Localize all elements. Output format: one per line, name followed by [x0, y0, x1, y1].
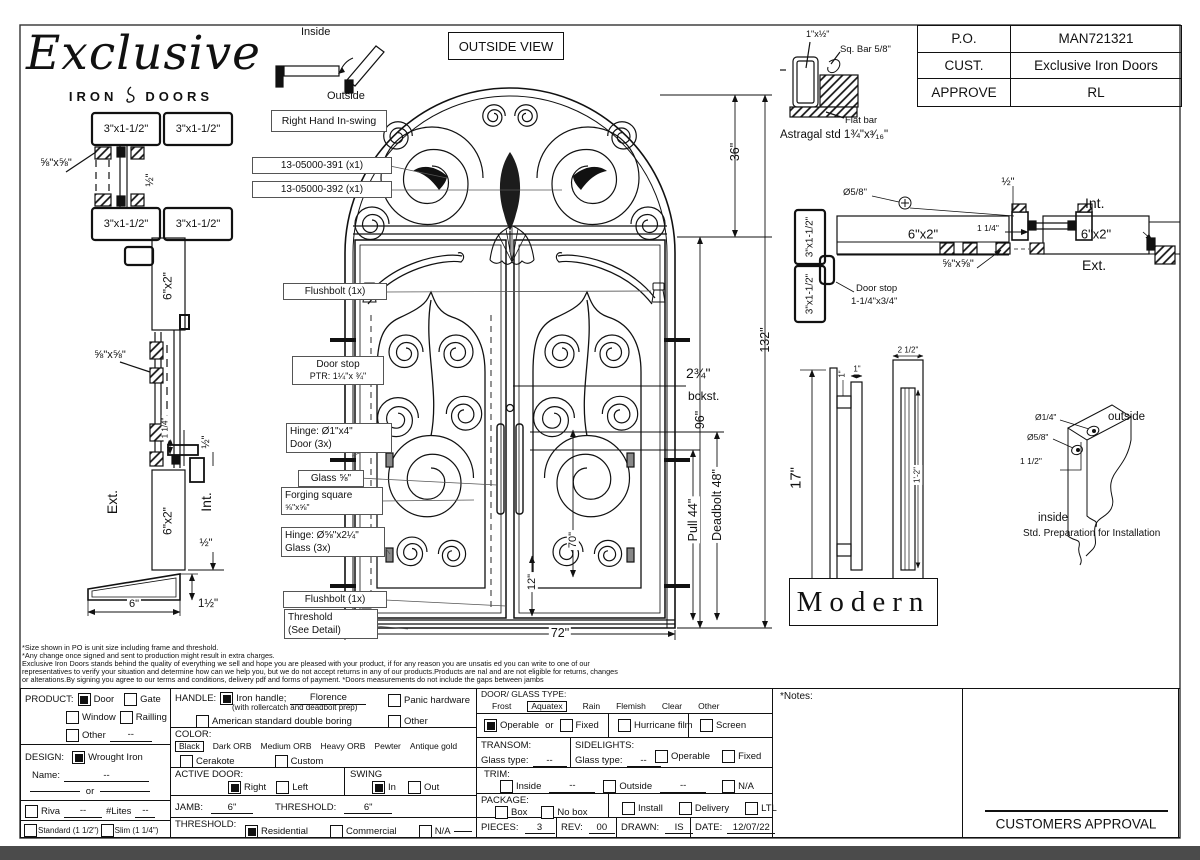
callout-flushbolt-bottom: Flushbolt (1x) — [283, 591, 387, 608]
package-label: PACKAGE: — [481, 796, 529, 806]
form-border — [476, 713, 772, 714]
hurricane-label: Hurricane film — [634, 721, 693, 731]
checkbox-residential[interactable] — [245, 825, 258, 838]
swing-in-label: In — [388, 783, 396, 793]
glass-clear[interactable]: Clear — [662, 702, 682, 711]
handle-panic-row: Panic hardware — [388, 694, 470, 707]
riva-value[interactable]: -- — [64, 805, 102, 817]
notes-label: *Notes: — [780, 691, 813, 702]
handle-inner-dim: 1'-2" — [914, 465, 923, 485]
checkbox-product-gate[interactable] — [124, 693, 137, 706]
checkbox-riva[interactable] — [25, 805, 38, 818]
checkbox-slim[interactable] — [101, 824, 114, 837]
prep-caption: Std. Preparation for Installation — [1023, 528, 1160, 539]
callout-threshold: Threshold (See Detail) — [284, 609, 378, 639]
glass-type-options: Frost Aquatex Rain Flemish Clear Other — [492, 701, 719, 712]
date-label: DATE: — [695, 823, 722, 833]
color-options-row: Black Dark ORB Medium ORB Heavy ORB Pewt… — [175, 741, 457, 752]
rev-value[interactable]: 00 — [589, 822, 615, 834]
left-half-label-1: ½" — [144, 173, 156, 186]
handle-other-row: Other — [388, 715, 428, 728]
package-options: Box No box — [495, 806, 587, 819]
po-table: P.O. MAN721321 CUST. Exclusive Iron Door… — [917, 25, 1182, 107]
iron-handle-label: Iron handle; — [236, 694, 286, 704]
callout-forging-square: Forging square ⅝"x⅝" — [281, 487, 383, 515]
checkbox-design-wrought-iron[interactable] — [72, 751, 85, 764]
handle-width: 2 1/2" — [898, 347, 919, 356]
right-jamb-label-1: 3"x1-1/2" — [804, 217, 815, 257]
checkbox-package-nobox[interactable] — [541, 806, 554, 819]
glass-type-label: DOOR/ GLASS TYPE: — [481, 690, 566, 699]
right-dia-label: Ø5/8" — [843, 188, 867, 199]
door-stop-line2: PTR: 1¼"x ¾" — [296, 371, 380, 383]
operable-label: Operable — [500, 721, 539, 731]
checkbox-sidelights-fixed[interactable] — [722, 750, 735, 763]
thickness-row: Standard (1 1/2") Slim (1 1/4") — [24, 824, 158, 837]
sidelights-label: SIDELIGHTS: — [575, 741, 634, 751]
color-label-row: COLOR: — [175, 730, 211, 740]
cust-value[interactable]: Exclusive Iron Doors — [1011, 53, 1181, 80]
dim-transom-36: 36" — [728, 143, 742, 161]
product-railling-label: Railling — [136, 713, 167, 723]
po-key: P.O. — [918, 26, 1011, 53]
astragal-caption: Astragal std 1¾"x³⁄₁₆" — [780, 129, 888, 142]
product-row-3: Other -- — [66, 729, 152, 742]
prep-dia-quarter: Ø1/4" — [1035, 413, 1056, 423]
threshold-na-value[interactable] — [454, 831, 472, 832]
left-half-label-2: ½" — [200, 435, 212, 448]
drawn-label: DRAWN: — [621, 823, 659, 833]
left-jamb-label-2: 3"x1-1/2" — [176, 123, 221, 135]
panic-hardware-label: Panic hardware — [404, 696, 470, 706]
color-pewter[interactable]: Pewter — [374, 742, 400, 751]
design-label: DESIGN: — [25, 753, 64, 763]
form-border — [20, 744, 170, 745]
form-border — [20, 837, 1180, 838]
jamb-label: JAMB: — [175, 803, 203, 813]
screen-label: Screen — [716, 721, 746, 731]
ltl-label: LTL — [761, 804, 777, 814]
swing-type-label: Right Hand In-swing — [282, 115, 377, 127]
threshold-na-label: N/A — [435, 827, 451, 837]
design-name-label: Name: — [32, 771, 60, 781]
checkbox-ltl[interactable] — [745, 802, 758, 815]
swing-out-label: Out — [424, 783, 439, 793]
checkbox-threshold-na[interactable] — [419, 825, 432, 838]
sidelights-glass-row: Glass type: -- — [575, 755, 661, 767]
left-six-label: 6" — [127, 598, 141, 610]
swing-type-box: Right Hand In-swing — [271, 110, 387, 132]
handle-one-b: 1" — [853, 366, 860, 375]
right-door-stop-line1: Door stop — [856, 284, 897, 295]
form-border — [570, 737, 571, 767]
handle-note-row: (with rollercatch and deadbolt prep) — [232, 704, 357, 712]
approve-value[interactable]: RL — [1011, 79, 1181, 106]
jamb-value[interactable]: 6" — [211, 802, 253, 814]
logo-ornament-icon — [124, 86, 138, 107]
dim-deadbolt-48: Deadbolt 48" — [710, 467, 724, 543]
install-label: Install — [638, 804, 663, 814]
checkbox-product-railling[interactable] — [120, 711, 133, 724]
checkbox-product-other[interactable] — [66, 729, 79, 742]
left-ext-label: Ext. — [105, 490, 121, 514]
approval-label: CUSTOMERS APPROVAL — [996, 816, 1157, 831]
left-tube-label-1: 6"x2" — [161, 272, 174, 300]
dim-glass-70: 70" — [567, 530, 579, 550]
glass-frost[interactable]: Frost — [492, 702, 511, 711]
checkbox-cerakote[interactable] — [180, 755, 193, 768]
product-row: PRODUCT: Door Gate — [25, 693, 161, 706]
trim-label: TRIM: — [484, 770, 510, 780]
hinge-door-line1: Hinge: Ø1"x4" — [290, 425, 388, 438]
design-row: DESIGN: Wrought Iron — [25, 751, 143, 764]
trim-label-row: TRIM: — [484, 770, 510, 780]
checkbox-product-door[interactable] — [78, 693, 91, 706]
form-border — [20, 688, 21, 838]
form-border — [616, 817, 617, 837]
checkbox-fixed[interactable] — [560, 719, 573, 732]
glass-flemish[interactable]: Flemish — [616, 702, 646, 711]
outside-view-label: OUTSIDE VIEW — [459, 39, 554, 54]
residential-label: Residential — [261, 827, 308, 837]
left-gap-label: 1 1/4" — [162, 416, 171, 441]
form-border — [170, 795, 476, 796]
checkbox-custom-color[interactable] — [275, 755, 288, 768]
active-left-label: Left — [292, 783, 308, 793]
design-name-value[interactable]: -- — [64, 770, 149, 782]
drawn-cell: DRAWN: IS — [621, 822, 693, 834]
approve-key: APPROVE — [918, 79, 1011, 106]
right-half-label: ½" — [1001, 176, 1014, 188]
active-right-label: Right — [244, 783, 266, 793]
prep-outside-label: outside — [1108, 411, 1145, 424]
jamb-threshold-label: THRESHOLD: — [275, 803, 336, 813]
threshold-line2: (See Detail) — [288, 624, 374, 637]
glass-other[interactable]: Other — [698, 702, 719, 711]
divider — [100, 791, 150, 792]
threshold-label-row: THRESHOLD: — [175, 820, 236, 830]
handle-other-label: Other — [404, 717, 428, 727]
trim-outside-value[interactable]: -- — [660, 780, 706, 792]
checkbox-install[interactable] — [622, 802, 635, 815]
product-door-label: Door — [94, 695, 115, 705]
screen-row: Screen — [700, 719, 746, 732]
hinge-door-line2: Door (3x) — [290, 438, 388, 451]
callout-part-392: 13-05000-392 (x1) — [252, 181, 392, 198]
left-jamb-label-1: 3"x1-1/2" — [104, 123, 149, 135]
pieces-label: PIECES: — [481, 823, 519, 833]
operable-or-label: or — [545, 721, 553, 731]
dim-width-72: 72" — [549, 626, 571, 640]
checkbox-delivery[interactable] — [679, 802, 692, 815]
prep-inside-label: inside — [1038, 512, 1068, 525]
left-bar-label-2: ⅝"x⅝" — [94, 349, 126, 361]
checkbox-active-right[interactable] — [228, 781, 241, 794]
form-border — [608, 713, 609, 737]
form-border — [20, 688, 1180, 689]
design-or-row: or — [30, 787, 150, 797]
package-nobox-label: No box — [557, 808, 587, 818]
checkbox-standard[interactable] — [24, 824, 37, 837]
cust-key: CUST. — [918, 53, 1011, 80]
color-label: COLOR: — [175, 730, 211, 740]
checkbox-product-window[interactable] — [66, 711, 79, 724]
form-border — [476, 688, 477, 838]
prep-one-half-dim: 1 1/2" — [1020, 457, 1042, 467]
disclaimer-line: or alterations.By signing you agree to o… — [22, 676, 672, 684]
checkbox-operable[interactable] — [484, 719, 497, 732]
checkbox-handle-other[interactable] — [388, 715, 401, 728]
checkbox-package-box[interactable] — [495, 806, 508, 819]
sidelights-operable-label: Operable — [671, 752, 710, 762]
right-ext-label: Ext. — [1082, 258, 1106, 274]
dim-pull-44: Pull 44" — [686, 497, 700, 544]
sidelights-options: Operable Fixed — [655, 750, 761, 763]
dim-backset-value: 2¾" — [686, 366, 710, 382]
logo-script: Exclusive — [26, 26, 261, 81]
handle-height-17: 17" — [789, 467, 806, 489]
right-door-stop-line2: 1-1/4"x3/4" — [851, 297, 897, 308]
approval-signature-line[interactable] — [985, 810, 1168, 812]
drawing-sheet: Exclusive IRON DOORS Inside Outside Righ… — [0, 0, 1200, 860]
design-or-label: or — [86, 787, 94, 797]
dim-overall-132: 132" — [758, 327, 772, 352]
disclaimer-block: *Size shown in PO is unit size including… — [22, 644, 672, 684]
cerakote-label: Cerakote — [196, 757, 235, 767]
checkbox-screen[interactable] — [700, 719, 713, 732]
handle-label: HANDLE: — [175, 694, 216, 704]
product-other-label: Other — [82, 731, 106, 741]
package-label-row: PACKAGE: — [481, 796, 529, 806]
handle-style-label: Modern — [797, 586, 931, 619]
color-medium-orb[interactable]: Medium ORB — [261, 742, 312, 751]
astragal-sqbar-label: Sq. Bar 5/8" — [840, 45, 891, 56]
sidelights-glass-label: Glass type: — [575, 756, 623, 766]
active-door-label: ACTIVE DOOR: — [175, 770, 243, 780]
right-tube-label-1: 6"x2" — [908, 228, 938, 243]
left-int-label: Int. — [199, 492, 215, 511]
jamb-row: JAMB: 6" THRESHOLD: 6" — [175, 802, 392, 814]
transom-glass-value[interactable]: -- — [533, 755, 567, 767]
active-door-label-row: ACTIVE DOOR: — [175, 770, 243, 780]
slim-label: Slim (1 1/4") — [115, 827, 159, 835]
glass-type-label-row: DOOR/ GLASS TYPE: — [481, 690, 566, 699]
product-gate-label: Gate — [140, 695, 161, 705]
delivery-label: Delivery — [695, 804, 729, 814]
checkbox-commercial[interactable] — [330, 825, 343, 838]
left-half-label-3: ½" — [199, 537, 212, 549]
color-row-2: Cerakote Custom — [180, 755, 323, 768]
sidelights-fixed-label: Fixed — [738, 752, 761, 762]
checkbox-trim-inside[interactable] — [500, 780, 513, 793]
right-int-label: Int. — [1085, 196, 1104, 212]
swing-label-row: SWING — [350, 770, 382, 780]
form-border — [170, 688, 171, 838]
checkbox-trim-outside[interactable] — [603, 780, 616, 793]
forging-line2: ⅝"x⅝" — [285, 502, 379, 513]
threshold-options: Residential Commercial N/A — [245, 825, 472, 838]
astragal-flatbar-label: Flat bar — [845, 116, 877, 127]
glass-aquatex-selected[interactable]: Aquatex — [527, 701, 566, 712]
operable-row: Operable or Fixed — [484, 719, 599, 732]
riva-row: Riva -- #Lites -- — [25, 805, 155, 818]
hurricane-row: Hurricane film — [618, 719, 693, 732]
right-tube-label-2: 6"x2" — [1081, 228, 1111, 243]
outside-view-box: OUTSIDE VIEW — [448, 32, 564, 60]
checkbox-american-boring[interactable] — [196, 715, 209, 728]
divider — [30, 791, 80, 792]
pieces-cell: PIECES: 3 — [481, 822, 555, 834]
callout-door-stop: Door stop PTR: 1¼"x ¾" — [292, 356, 384, 385]
trim-inside-value[interactable]: -- — [549, 780, 595, 792]
right-bar-label: ⅝"x⅝" — [942, 258, 974, 270]
riva-lites-value[interactable]: -- — [135, 805, 155, 817]
trim-na-label: N/A — [738, 782, 754, 792]
left-one-half-label: 1½" — [198, 598, 218, 611]
transom-label: TRANSOM: — [481, 741, 531, 751]
date-value[interactable]: 12/07/22 — [727, 822, 775, 834]
left-jamb-label-3: 3"x1-1/2" — [104, 218, 149, 230]
form-border — [20, 800, 170, 801]
threshold-line1: Threshold — [288, 611, 374, 624]
hinge-glass-line1: Hinge: Ø⅝"x2¼" — [285, 529, 381, 542]
fixed-label: Fixed — [576, 721, 599, 731]
threshold-label: THRESHOLD: — [175, 820, 236, 830]
checkbox-active-left[interactable] — [276, 781, 289, 794]
left-tube-label-2: 6"x2" — [161, 507, 174, 535]
form-border — [772, 688, 773, 838]
product-window-label: Window — [82, 713, 116, 723]
form-border — [476, 737, 772, 738]
handle-note: (with rollercatch and deadbolt prep) — [232, 704, 357, 712]
checkbox-panic-hardware[interactable] — [388, 694, 401, 707]
dim-backset-word: bckst. — [688, 390, 719, 403]
american-boring-label: American standard double boring — [212, 717, 352, 727]
checkbox-swing-out[interactable] — [408, 781, 421, 794]
right-gap-label: 1 1/4" — [977, 224, 999, 234]
callout-hinge-door: Hinge: Ø1"x4" Door (3x) — [286, 423, 392, 453]
form-border — [608, 793, 609, 817]
riva-lites-label: #Lites — [106, 807, 131, 817]
left-jamb-label-4: 3"x1-1/2" — [176, 218, 221, 230]
delivery-options: Install Delivery LTL — [622, 802, 777, 815]
package-box-label: Box — [511, 808, 527, 818]
form-border — [1178, 688, 1179, 838]
right-jamb-label-2: 3"x1-1/2" — [804, 274, 815, 314]
color-selected[interactable]: Black — [175, 741, 204, 752]
swing-options: In Out — [372, 781, 439, 794]
active-door-options: Right Left — [228, 781, 308, 794]
design-name-row: Name: -- — [32, 770, 149, 782]
swing-inside-label: Inside — [301, 26, 330, 38]
left-bar-label-1: ⅝"x⅝" — [40, 157, 72, 169]
dim-door-96: 96" — [693, 411, 707, 429]
form-border — [962, 688, 963, 838]
po-value[interactable]: MAN721321 — [1011, 26, 1181, 53]
product-row-2: Window Railling — [66, 711, 167, 724]
pieces-value[interactable]: 3 — [525, 822, 555, 834]
form-border — [556, 817, 557, 837]
swing-label: SWING — [350, 770, 382, 780]
forging-line1: Forging square — [285, 489, 379, 502]
transom-label-row: TRANSOM: — [481, 741, 531, 751]
color-heavy-orb[interactable]: Heavy ORB — [321, 742, 366, 751]
design-wrought-label: Wrought Iron — [88, 753, 143, 763]
date-cell: DATE: 12/07/22 — [695, 822, 775, 834]
handle-one-a: 1" — [839, 370, 848, 377]
form-border — [344, 767, 345, 795]
rev-cell: REV: 00 — [561, 822, 615, 834]
checkbox-hurricane-film[interactable] — [618, 719, 631, 732]
jamb-threshold-value[interactable]: 6" — [344, 802, 392, 814]
color-antique-gold[interactable]: Antique gold — [410, 742, 457, 751]
callout-part-391: 13-05000-391 (x1) — [252, 157, 392, 174]
callout-glass: Glass ⅝" — [298, 470, 364, 487]
transom-glass-label: Glass type: — [481, 756, 529, 766]
trim-outside-label: Outside — [619, 782, 652, 792]
logo-subtitle: IRON DOORS — [52, 86, 230, 107]
logo-doors-label: DOORS — [145, 89, 213, 104]
commercial-label: Commercial — [346, 827, 397, 837]
glass-rain[interactable]: Rain — [583, 702, 600, 711]
callout-hinge-glass: Hinge: Ø⅝"x2¼" Glass (3x) — [281, 527, 385, 557]
logo-iron-label: IRON — [69, 89, 118, 104]
sidelights-label-row: SIDELIGHTS: — [575, 741, 634, 751]
checkbox-trim-na[interactable] — [722, 780, 735, 793]
riva-label: Riva — [41, 807, 60, 817]
callout-flushbolt-top: Flushbolt (1x) — [283, 283, 387, 300]
dim-bottom-12: 12" — [526, 572, 538, 592]
rev-label: REV: — [561, 823, 583, 833]
checkbox-swing-in[interactable] — [372, 781, 385, 794]
checkbox-sidelights-operable[interactable] — [655, 750, 668, 763]
handle-american-row: American standard double boring — [196, 715, 352, 728]
trim-inside-label: Inside — [516, 782, 541, 792]
trim-options: Inside -- Outside -- N/A — [500, 780, 754, 793]
prep-dia-fiveeighths: Ø5/8" — [1027, 433, 1048, 443]
product-label: PRODUCT: — [25, 695, 74, 705]
transom-glass-row: Glass type: -- — [481, 755, 567, 767]
astragal-dim-label: 1"x½" — [806, 29, 829, 39]
drawn-value[interactable]: IS — [665, 822, 693, 834]
form-border — [20, 820, 170, 821]
swing-outside-label: Outside — [327, 90, 365, 102]
hinge-glass-line2: Glass (3x) — [285, 542, 381, 555]
handle-style-box: Modern — [789, 578, 938, 626]
door-stop-line1: Door stop — [296, 358, 380, 371]
product-other-value[interactable]: -- — [110, 729, 152, 741]
standard-label: Standard (1 1/2") — [38, 827, 99, 835]
color-dark-orb[interactable]: Dark ORB — [213, 742, 252, 751]
custom-color-label: Custom — [291, 757, 324, 767]
